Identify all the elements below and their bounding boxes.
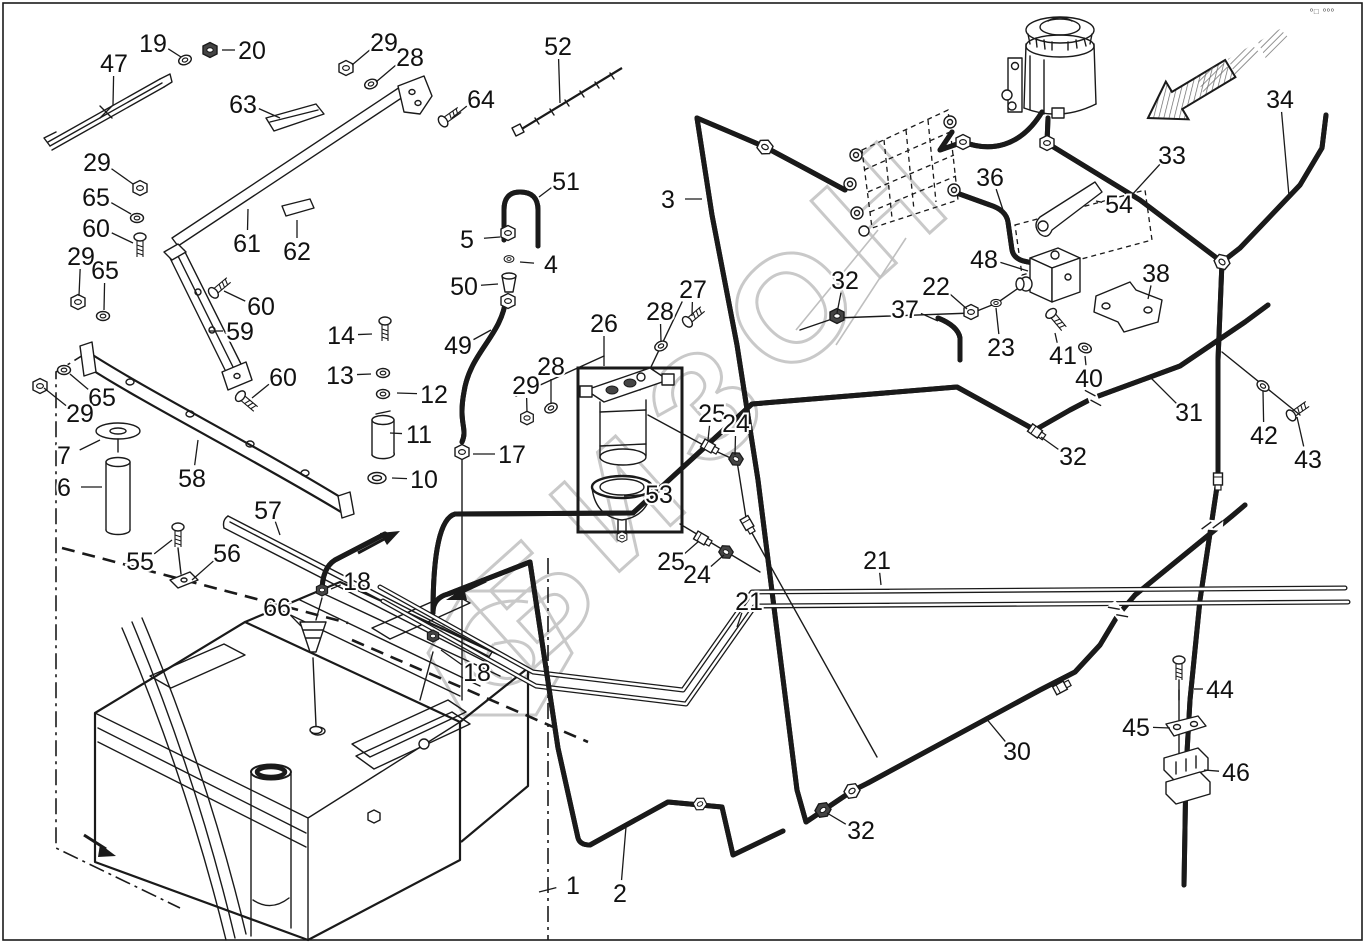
flow-arrows [84, 531, 486, 857]
callout-label: 23 [987, 334, 1015, 362]
callout-leader [484, 237, 500, 238]
pipe-break-icon [1201, 519, 1224, 531]
reservoir [1002, 17, 1096, 118]
filler-neck [251, 765, 291, 937]
callout-leader [622, 827, 626, 880]
callout-label: 65 [82, 184, 110, 212]
callout-label: 22 [922, 273, 950, 301]
fitting-17 [455, 445, 469, 460]
callout-label: 33 [1158, 142, 1186, 170]
bolt-55 [172, 523, 184, 547]
callout-leader [104, 283, 105, 310]
callout-label: 49 [444, 332, 472, 360]
callout-label: 3 [661, 186, 675, 214]
callout-label: 2 [613, 880, 627, 908]
callout-leader [392, 478, 407, 479]
clamp-46 [1164, 748, 1210, 804]
callout-leader [357, 374, 371, 375]
callout-label: 1 [566, 872, 580, 900]
callout-label: 38 [1142, 260, 1170, 288]
nut-29 [133, 181, 147, 196]
washer-12 [377, 390, 390, 399]
callout-label: 18 [463, 659, 491, 687]
callout-leader [520, 262, 534, 263]
washer-65 [131, 214, 144, 223]
callout-label: 10 [410, 466, 438, 494]
nut-29 [521, 411, 534, 425]
beam-61 [172, 76, 432, 246]
callout-label: 31 [1175, 399, 1203, 427]
washer-13 [377, 369, 390, 378]
callout-label: 46 [1222, 759, 1250, 787]
bolt-60 [134, 233, 146, 257]
callout-label: 53 [645, 481, 673, 509]
callout-label: 6 [57, 474, 71, 502]
nut-22 [964, 305, 978, 320]
callout-label: 24 [683, 561, 711, 589]
callout-leader [112, 233, 133, 243]
strap-47 [44, 74, 172, 150]
nut-20 [203, 43, 217, 58]
washer-4 [504, 256, 514, 263]
direction-arrow [1137, 29, 1288, 137]
drop-line-66 [313, 598, 322, 726]
bracket-59 [164, 244, 252, 390]
banjo-5 [501, 226, 515, 241]
callout-label: 24 [722, 410, 750, 438]
funnel-66 [300, 622, 326, 734]
direction-arrow-stripes [1196, 29, 1288, 94]
callout-leader [1041, 437, 1058, 449]
callout-leader [79, 269, 80, 296]
callout-label: 4 [544, 251, 558, 279]
cable-tie-52 [512, 68, 622, 136]
callout-label: 55 [126, 548, 154, 576]
callout-leader [192, 561, 214, 580]
nut-reservoir-hose [956, 135, 970, 150]
nut-29 [339, 61, 353, 76]
callout-leader [358, 334, 372, 335]
cap-7 [96, 423, 140, 452]
callout-label: 37 [891, 296, 919, 324]
callout-label: 52 [544, 33, 572, 61]
callout-label: 47 [100, 50, 128, 78]
nut-hose33 [1040, 136, 1054, 151]
corner-mark: º□ ººº [1310, 7, 1335, 16]
fitting-18a [316, 584, 327, 596]
callout-label: 12 [420, 381, 448, 409]
callout-leader [950, 294, 967, 309]
callout-label: 60 [269, 364, 297, 392]
callout-label: 29 [66, 400, 94, 428]
parts-diagram-page: БИЗОН [0, 0, 1365, 943]
callout-label: 45 [1122, 714, 1150, 742]
callout-label: 25 [657, 548, 685, 576]
callout-leader [559, 59, 560, 103]
callout-label: 63 [229, 91, 257, 119]
bolt-60 [233, 389, 259, 414]
callout-label: 60 [82, 215, 110, 243]
callout-leader [376, 65, 396, 82]
link-arm-54 [1036, 182, 1102, 236]
callout-leader [1085, 356, 1086, 365]
callout-leader [1096, 201, 1102, 202]
callout-leader [113, 76, 114, 105]
clamp-set [1164, 656, 1210, 804]
callout-label: 18 [343, 568, 371, 596]
callout-label: 42 [1250, 422, 1278, 450]
plate-56 [170, 572, 198, 588]
callout-leader [70, 374, 88, 389]
callout-label: 28 [646, 298, 674, 326]
callout-leader [224, 291, 245, 301]
callout-label: 21 [863, 547, 891, 575]
callout-leader [390, 433, 402, 434]
washer-23 [991, 299, 1001, 306]
callout-label: 51 [552, 168, 580, 196]
callout-leader [111, 203, 131, 214]
callout-leader [1151, 378, 1176, 403]
callout-leader [352, 50, 370, 65]
callout-leader [539, 188, 551, 197]
callout-label: 29 [370, 29, 398, 57]
ring-10 [368, 473, 386, 484]
fitting-18b [427, 630, 438, 642]
callout-label: 44 [1206, 676, 1234, 704]
callout-label: 43 [1294, 446, 1322, 474]
callout-label: 40 [1075, 365, 1103, 393]
callout-label: 32 [1059, 443, 1087, 471]
callout-label: 60 [247, 293, 275, 321]
bar-63 [266, 104, 324, 131]
callout-label: 27 [679, 276, 707, 304]
fitting-50 [502, 273, 516, 292]
nut-29 [33, 379, 47, 394]
callout-label: 36 [976, 164, 1004, 192]
callout-label: 34 [1266, 86, 1294, 114]
bolt-44 [1173, 656, 1185, 680]
callout-leader [827, 813, 846, 824]
bolt-60 [206, 275, 232, 300]
callout-leader [154, 540, 172, 554]
callout-label: 41 [1049, 342, 1077, 370]
callout-label: 30 [1003, 738, 1031, 766]
washer-65 [58, 366, 71, 375]
callout-label: 7 [57, 442, 71, 470]
callout-leader [112, 169, 133, 184]
bolt-41 [1044, 306, 1069, 332]
callout-label: 66 [263, 594, 291, 622]
callout-leader [397, 393, 417, 394]
bracket-38 [1094, 282, 1162, 332]
callout-label: 29 [512, 372, 540, 400]
callout-label: 56 [213, 540, 241, 568]
sleeve-6 [106, 458, 130, 535]
callout-label: 32 [831, 267, 859, 295]
washer-65 [97, 312, 110, 321]
callout-label: 64 [467, 86, 495, 114]
callout-label: 58 [178, 465, 206, 493]
washer-28 [363, 78, 378, 91]
cup-11 [372, 411, 394, 459]
callout-label: 62 [283, 238, 311, 266]
callout-label: 59 [226, 318, 254, 346]
callout-label: 54 [1105, 191, 1133, 219]
screw-64 [436, 105, 463, 129]
nut-pipe3 [755, 137, 774, 157]
union [740, 516, 756, 535]
callout-leader [481, 284, 498, 285]
callout-label: 61 [233, 230, 261, 258]
callout-leader [1282, 112, 1289, 196]
callout-label: 20 [238, 37, 266, 65]
callout-label: 19 [139, 30, 167, 58]
callout-label: 13 [326, 362, 354, 390]
callout-leader [1153, 727, 1170, 728]
callout-label: 28 [396, 44, 424, 72]
callout-leader [1297, 417, 1304, 446]
callout-leader [252, 384, 269, 398]
callout-leader [996, 308, 999, 334]
nut [692, 796, 708, 813]
callout-label: 32 [847, 817, 875, 845]
callout-label: 48 [970, 246, 998, 274]
washer-40 [1077, 342, 1092, 355]
callout-leader [44, 388, 66, 406]
callout-label: 29 [83, 149, 111, 177]
callout-leader [195, 440, 198, 465]
callout-label: 21 [735, 588, 763, 616]
callout-label: 28 [537, 353, 565, 381]
union-pipe34 [1214, 473, 1223, 490]
bolt-14 [379, 317, 391, 341]
callout-label: 65 [91, 257, 119, 285]
callout-leader [80, 440, 100, 450]
callout-label: 5 [460, 226, 474, 254]
parts-diagram: БИЗОН [0, 0, 1365, 943]
callout-label: 17 [498, 441, 526, 469]
callout-leader [1263, 391, 1264, 422]
callout-leader [711, 555, 724, 567]
callout-leader [452, 106, 467, 118]
callout-label: 14 [327, 322, 355, 350]
nut-29 [71, 295, 85, 310]
callout-label: 57 [254, 497, 282, 525]
callout-label: 26 [590, 310, 618, 338]
callout-label: 11 [406, 421, 432, 449]
callout-leader [247, 209, 248, 230]
bar-62 [282, 199, 314, 216]
callout-leader [168, 49, 181, 57]
nut [501, 294, 515, 309]
callout-label: 50 [450, 273, 478, 301]
